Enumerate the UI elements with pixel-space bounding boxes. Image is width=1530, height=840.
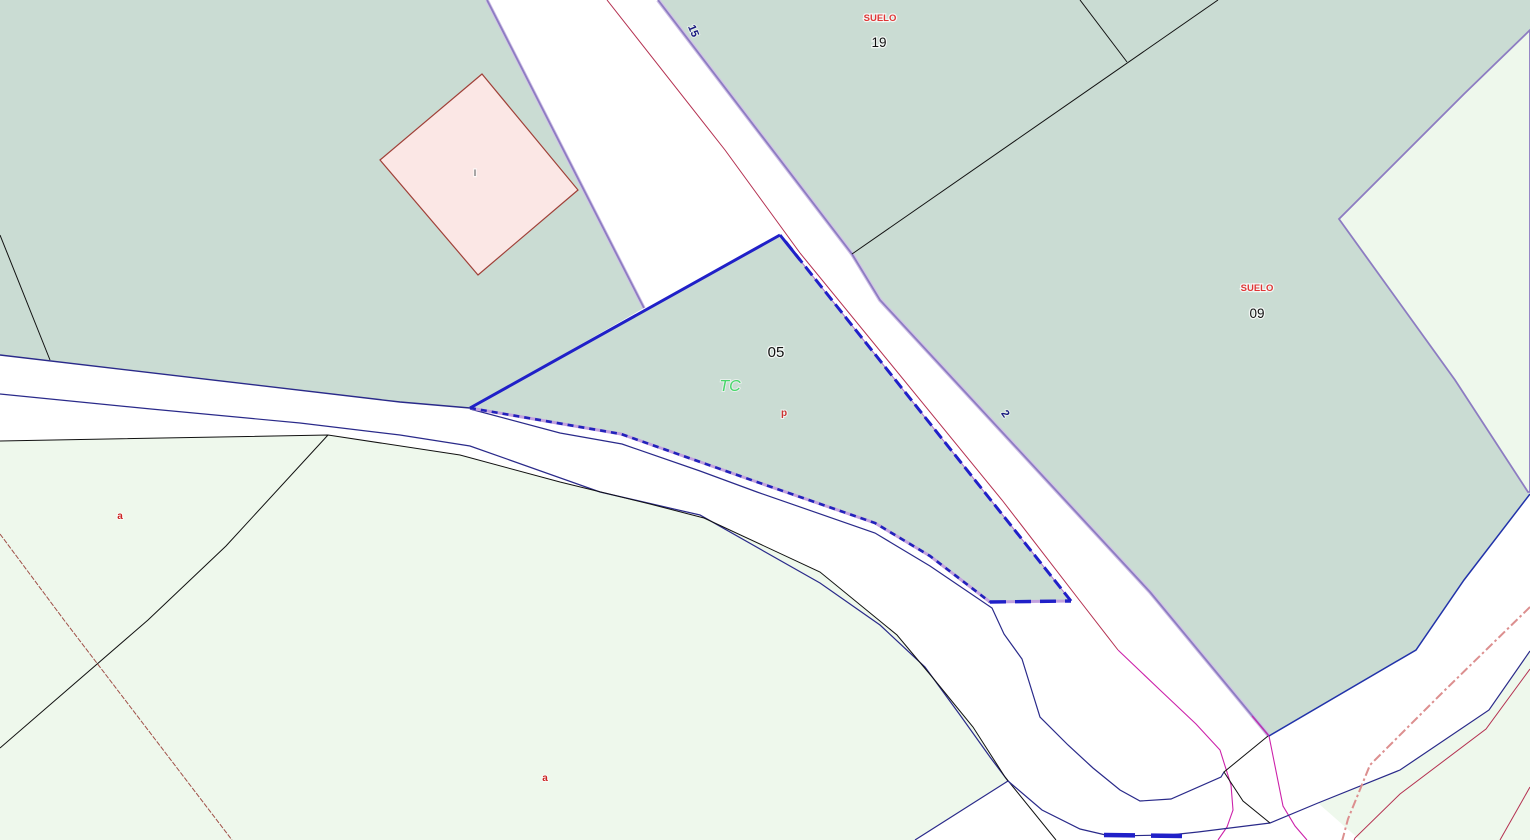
svg-text:SUELO: SUELO: [864, 13, 897, 24]
svg-text:19: 19: [871, 35, 886, 50]
svg-text:09: 09: [1249, 306, 1264, 321]
svg-text:a: a: [542, 773, 548, 784]
svg-text:SUELO: SUELO: [1241, 283, 1274, 294]
svg-text:05: 05: [768, 344, 785, 361]
svg-text:p: p: [781, 408, 787, 419]
svg-text:I: I: [474, 168, 477, 178]
svg-text:a: a: [117, 511, 123, 522]
svg-text:TC: TC: [719, 378, 741, 395]
